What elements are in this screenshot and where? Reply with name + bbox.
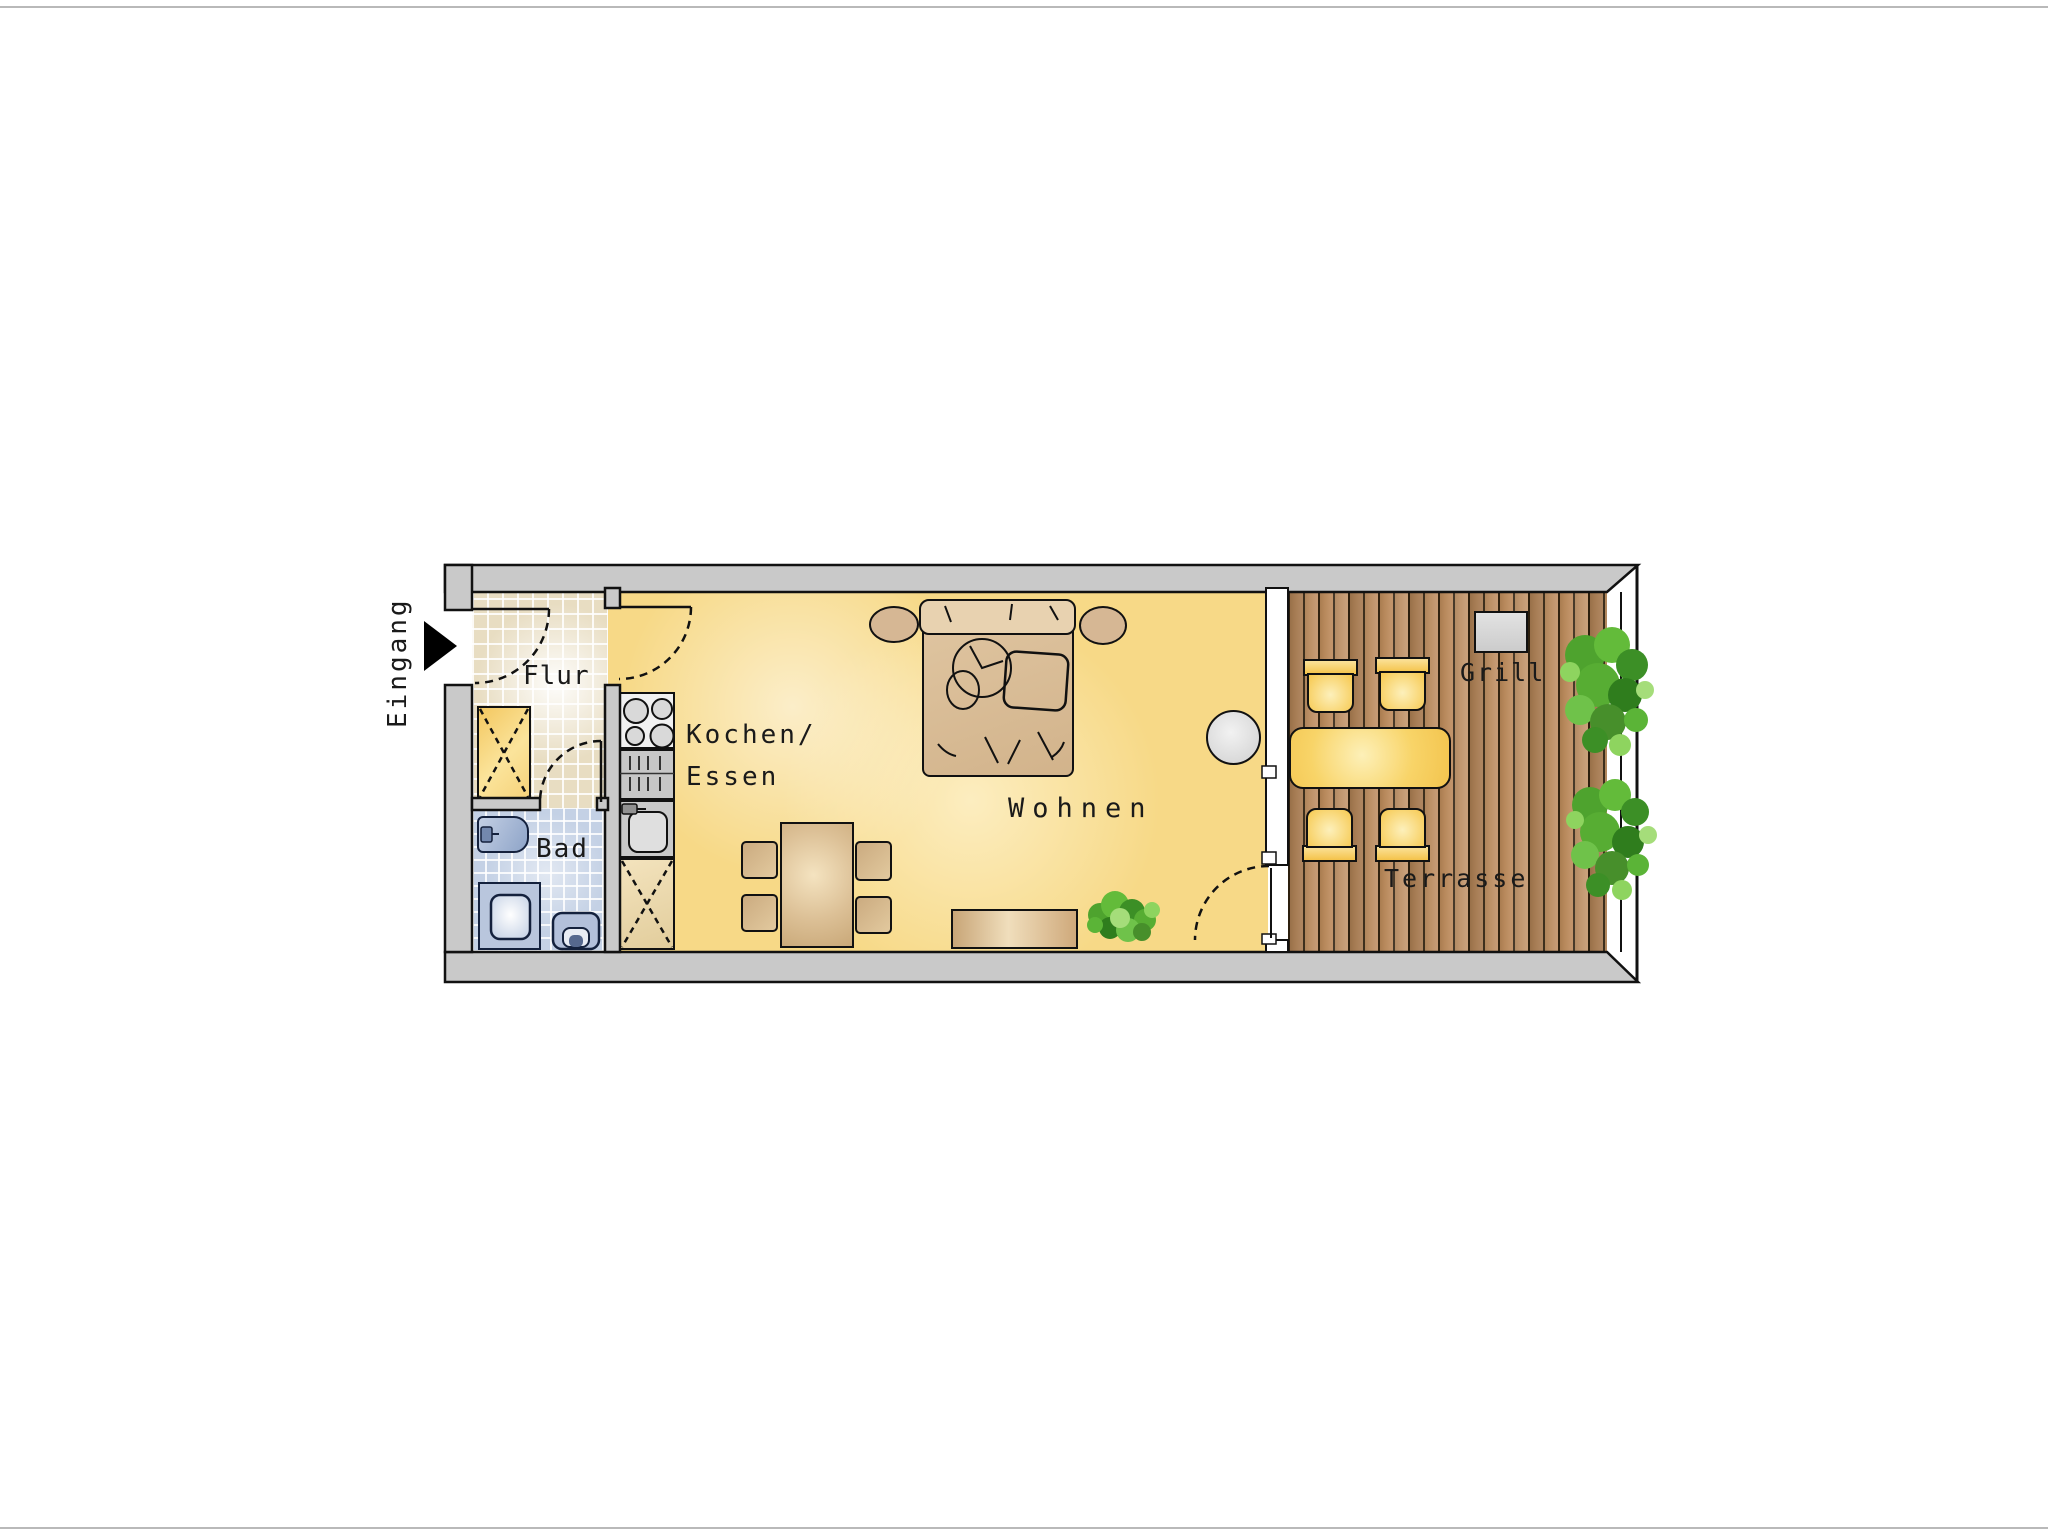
drawer-unit-icon (619, 749, 675, 800)
bed-pillows-icon (919, 599, 1076, 635)
round-side-table-icon (1206, 710, 1261, 765)
living-label: Wohnen (1008, 793, 1154, 824)
stove-icon (619, 692, 675, 749)
dining-chair-icon (855, 896, 892, 934)
washbasin-icon (477, 816, 529, 853)
entrance-arrow-icon (424, 621, 457, 671)
nightstand-icon (1079, 606, 1127, 645)
tall-cabinet-icon (619, 858, 675, 950)
page-bottom-edge (0, 1527, 2048, 1529)
terrace-chair-icon (1303, 659, 1358, 717)
railing-icon (1621, 565, 1637, 982)
chair-seat (1307, 673, 1354, 713)
kitchen-sink-icon (619, 800, 675, 858)
terrace-chair-icon (1375, 657, 1430, 715)
dining-table-icon (780, 822, 854, 948)
entrance-label: Eingang (383, 588, 413, 728)
grill-label: Grill (1460, 658, 1545, 687)
terrace-label: Terrasse (1384, 864, 1528, 893)
terrace-chair-icon (1302, 804, 1357, 862)
wall-left-lower (445, 685, 472, 952)
chair-seat (1306, 808, 1353, 848)
kitchen-label-line2: Essen (686, 762, 779, 792)
wardrobe-icon (477, 706, 531, 800)
dining-chair-icon (855, 841, 892, 881)
kitchen-label-line1: Kochen/ (686, 720, 817, 750)
wall-left-upper (445, 565, 472, 610)
page-top-edge (0, 6, 2048, 8)
wall-top (445, 565, 1638, 592)
chair-seat (1379, 671, 1426, 711)
terrace-table-icon (1289, 727, 1451, 789)
grill-icon (1474, 611, 1528, 653)
hall-label: Flur (523, 661, 590, 691)
shower-icon (478, 882, 541, 950)
sideboard-icon (951, 909, 1078, 949)
dining-chair-icon (741, 894, 778, 932)
floorplan-image: Eingang Flur Bad Kochen/ Essen Wohnen Gr… (0, 0, 2048, 1536)
dining-chair-icon (741, 841, 778, 879)
terrace-chair-icon (1375, 804, 1430, 862)
nightstand-icon (869, 606, 919, 643)
wall-bottom (445, 952, 1638, 982)
bath-label: Bad (536, 834, 589, 864)
chair-seat (1379, 808, 1426, 848)
